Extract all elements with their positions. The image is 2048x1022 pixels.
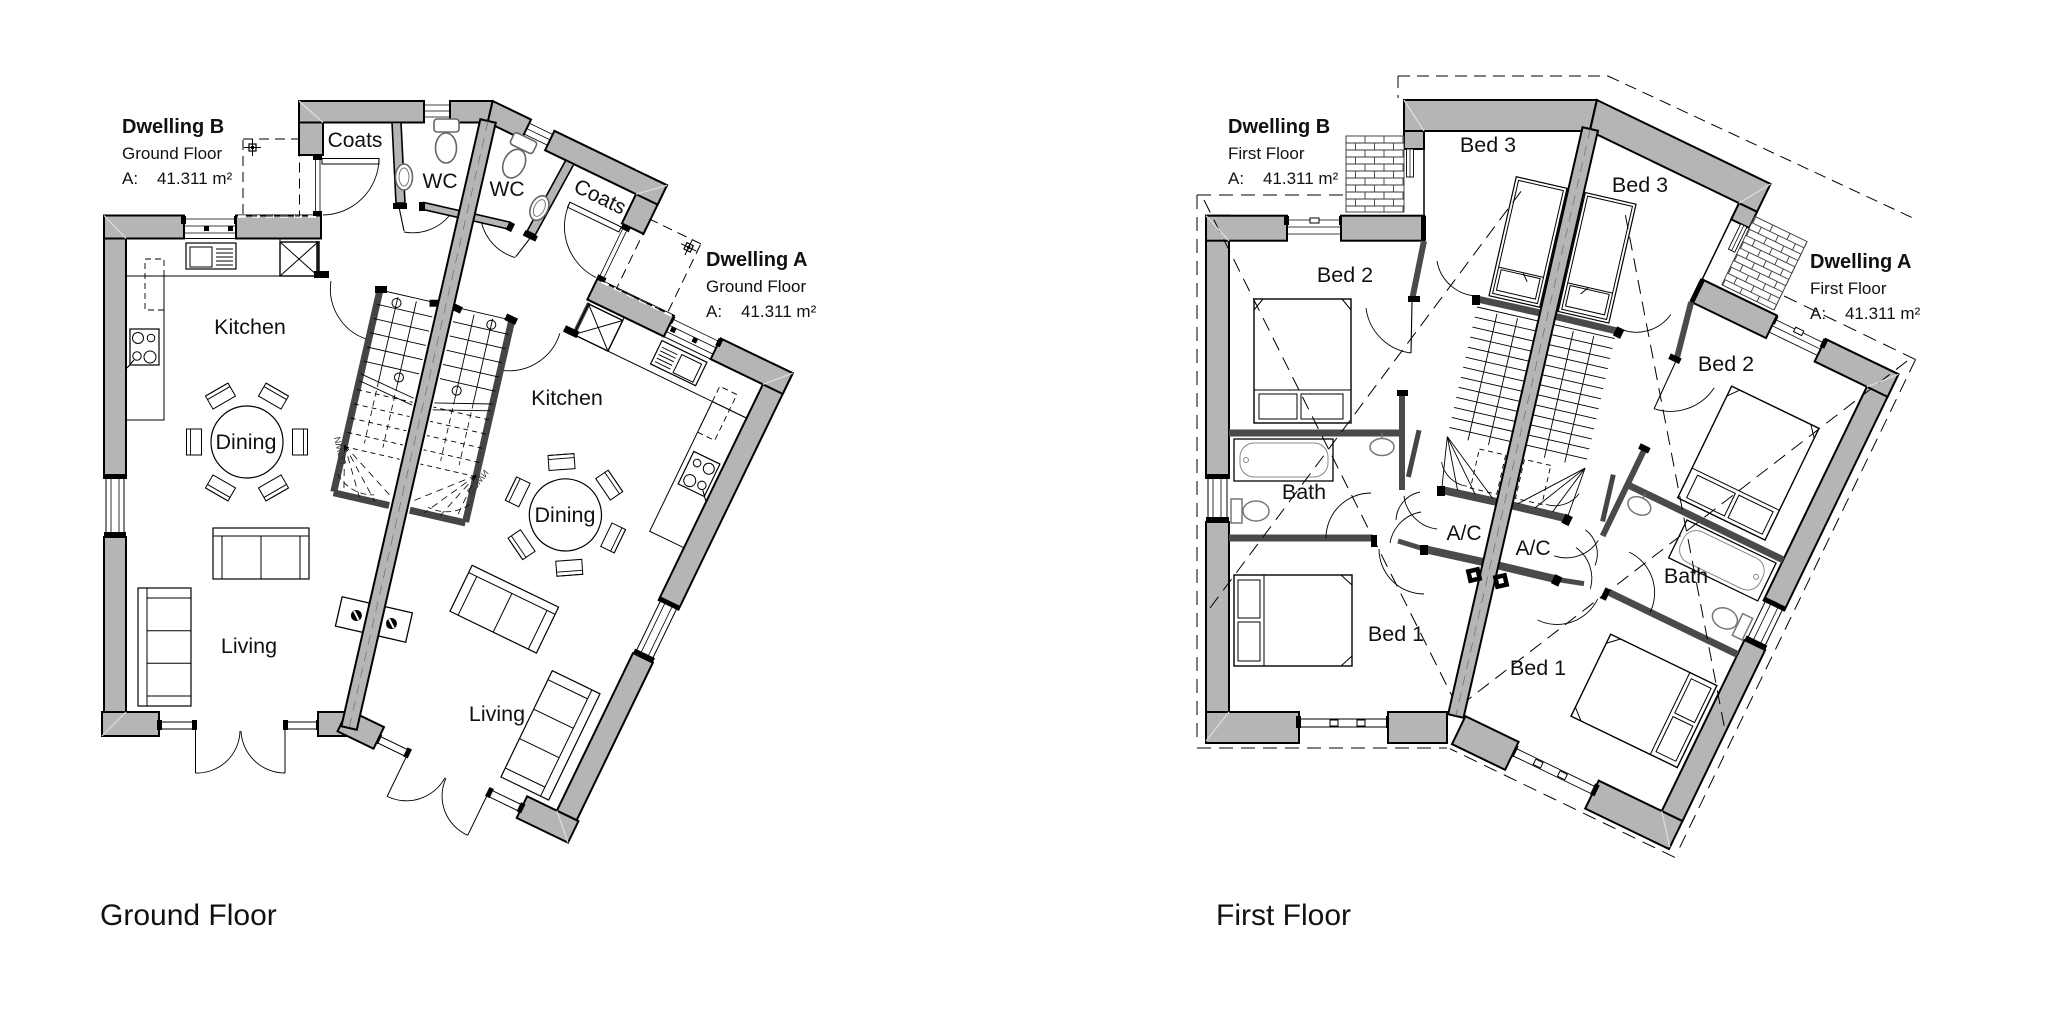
svg-text:Living: Living <box>221 634 277 658</box>
svg-text:First Floor: First Floor <box>1228 144 1305 163</box>
svg-text:Ground Floor: Ground Floor <box>706 277 806 296</box>
svg-text:Living: Living <box>469 702 525 726</box>
svg-text:Ground Floor: Ground Floor <box>100 899 277 932</box>
svg-text:Kitchen: Kitchen <box>531 386 603 410</box>
svg-text:Bed 3: Bed 3 <box>1460 133 1516 157</box>
svg-text:First Floor: First Floor <box>1216 899 1351 932</box>
svg-text:Dwelling A: Dwelling A <box>706 249 807 271</box>
svg-text:Dwelling B: Dwelling B <box>122 116 224 138</box>
svg-text:A/C: A/C <box>1515 537 1550 560</box>
svg-text:A: 41.311 m²: A: 41.311 m² <box>122 169 233 188</box>
svg-text:WC: WC <box>490 178 525 201</box>
svg-text:A: 41.311 m²: A: 41.311 m² <box>1810 304 1921 323</box>
svg-text:Bed 3: Bed 3 <box>1612 173 1668 197</box>
svg-text:Dining: Dining <box>535 503 596 527</box>
svg-text:Dining: Dining <box>216 430 277 454</box>
svg-text:Coats: Coats <box>328 129 383 152</box>
svg-text:Bed 2: Bed 2 <box>1698 352 1754 376</box>
svg-text:Bath: Bath <box>1664 564 1708 588</box>
svg-text:Ground Floor: Ground Floor <box>122 144 222 163</box>
svg-text:Bath: Bath <box>1282 480 1326 504</box>
svg-text:A: 41.311 m²: A: 41.311 m² <box>1228 169 1339 188</box>
svg-text:Bed 1: Bed 1 <box>1368 622 1424 646</box>
svg-text:A/C: A/C <box>1446 522 1481 545</box>
svg-text:A: 41.311 m²: A: 41.311 m² <box>706 302 817 321</box>
svg-text:First Floor: First Floor <box>1810 279 1887 298</box>
svg-text:Dwelling B: Dwelling B <box>1228 116 1330 138</box>
svg-text:Bed 1: Bed 1 <box>1510 656 1566 680</box>
svg-text:Dwelling A: Dwelling A <box>1810 251 1911 273</box>
svg-text:Bed 2: Bed 2 <box>1317 263 1373 287</box>
svg-text:Kitchen: Kitchen <box>214 315 286 339</box>
svg-text:WC: WC <box>423 170 458 193</box>
